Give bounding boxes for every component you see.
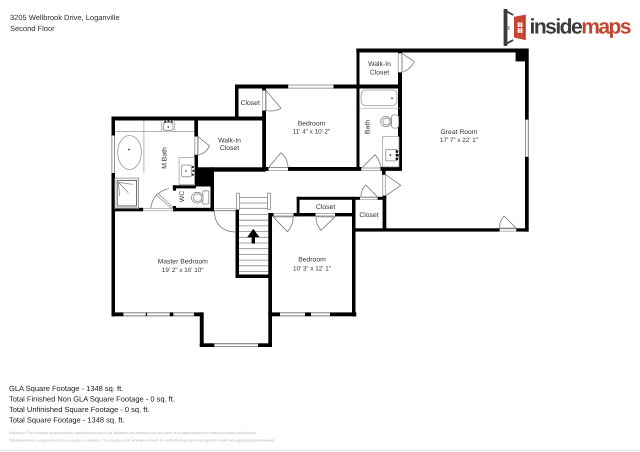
svg-text:Closet: Closet [220,145,239,152]
svg-text:This illustration is not guara: This illustration is not guaranteed to b… [9,439,275,443]
svg-text:Total Unfinished Square Footag: Total Unfinished Square Footage - 0 sq. … [9,405,150,414]
svg-text:17' 7" x 22' 1": 17' 7" x 22' 1" [440,137,478,144]
svg-text:Second Floor: Second Floor [10,24,55,33]
svg-text:11' 4" x 10' 2": 11' 4" x 10' 2" [293,128,331,135]
svg-text:Bedroom: Bedroom [298,257,326,264]
svg-text:10' 3" x 12' 1": 10' 3" x 12' 1" [293,265,331,272]
svg-text:3205 Wellbrook Drive, Loganvil: 3205 Wellbrook Drive, Loganville [10,13,120,22]
svg-text:Master Bedroom: Master Bedroom [158,259,209,266]
svg-text:insidemaps: insidemaps [530,16,631,39]
svg-text:Bath: Bath [365,120,372,134]
svg-text:Bedroom: Bedroom [298,121,326,128]
svg-text:Great Room: Great Room [440,129,477,136]
svg-text:WC: WC [179,191,186,202]
svg-text:GLA Square Footage - 1348 sq.: GLA Square Footage - 1348 sq. ft. [9,384,123,393]
svg-text:Walk-In: Walk-In [218,138,241,145]
svg-text:Closet: Closet [316,204,335,211]
svg-text:Total Finished Non GLA Square: Total Finished Non GLA Square Footage - … [9,394,175,403]
svg-text:Walk-In: Walk-In [368,61,391,68]
svg-text:Closet: Closet [370,70,389,77]
svg-text:Closet: Closet [359,212,378,219]
svg-text:Disclaimer: The floorplans dep: Disclaimer: The floorplans depicted and … [9,431,257,435]
svg-text:Closet: Closet [241,100,260,107]
svg-text:M.Bath: M.Bath [162,147,169,169]
svg-text:19' 2" x 16' 10": 19' 2" x 16' 10" [162,267,204,274]
svg-text:Total Square Footage - 1348 sq: Total Square Footage - 1348 sq. ft. [9,415,125,424]
